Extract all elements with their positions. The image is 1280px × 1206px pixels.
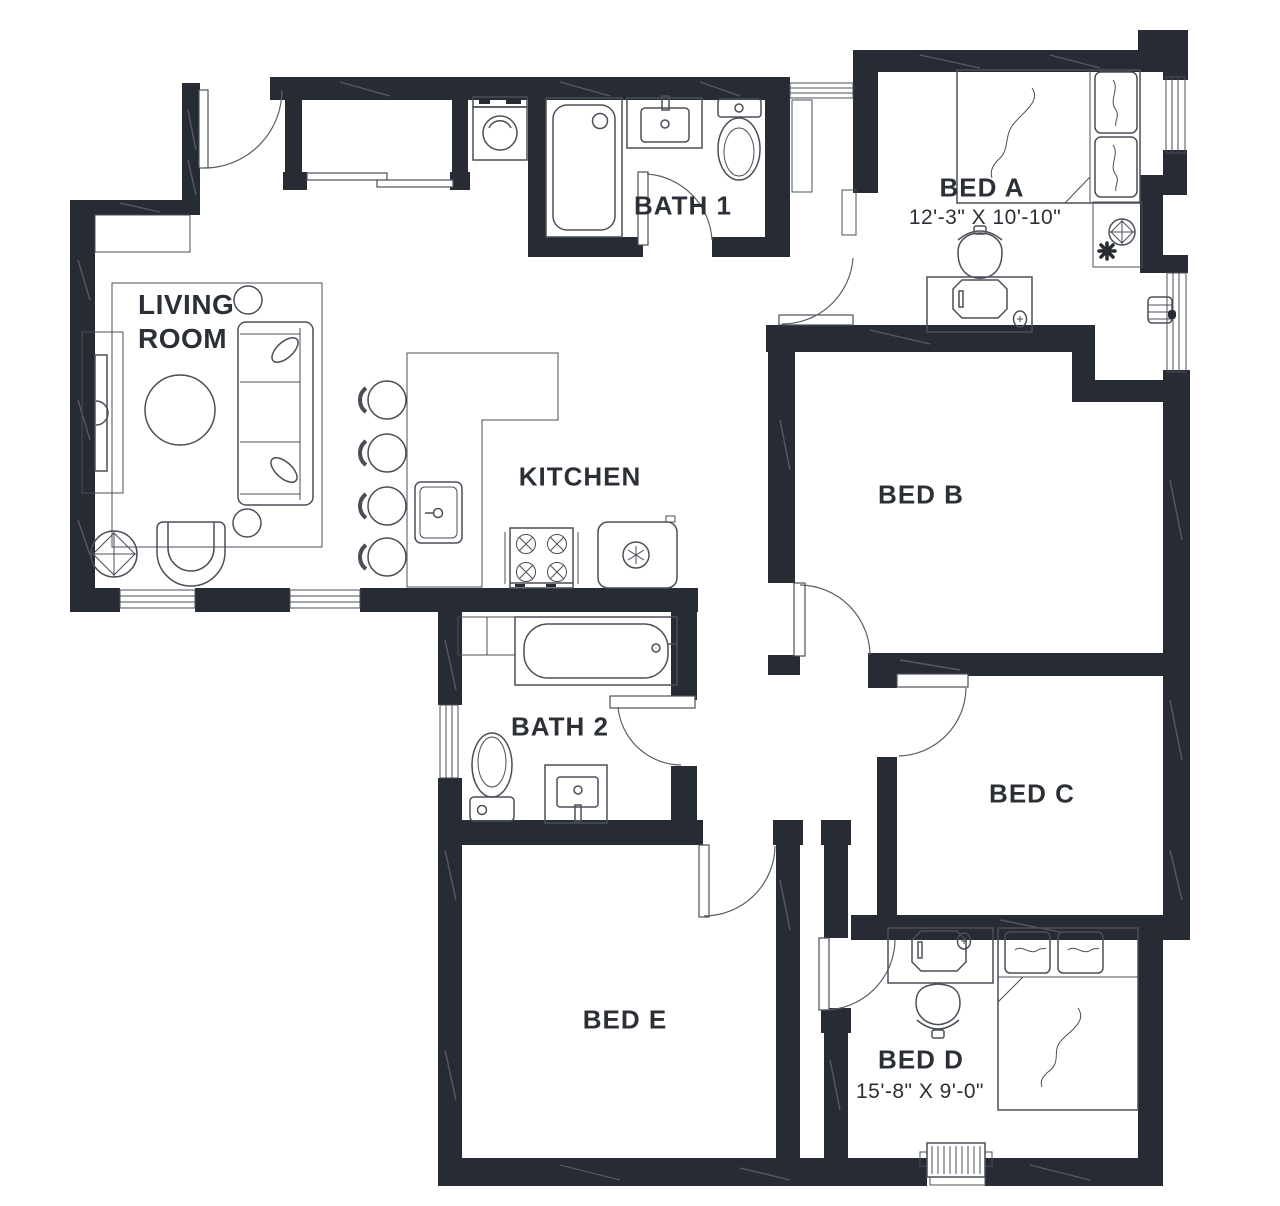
bed-d-bed-icon: [998, 928, 1138, 1110]
bed-d-door: [819, 938, 895, 1010]
closet-sliding-doors: [307, 173, 453, 187]
bed-a-dimensions: 12'-3" X 10'-10": [909, 206, 1061, 230]
living-room-window-left: [120, 590, 195, 608]
floor-plan: LIVING ROOM KITCHEN BATH 1 BATH 2 BED A …: [0, 0, 1280, 1206]
bed-a-window: [1166, 77, 1185, 153]
living-room-label-line1: LIVING: [138, 288, 234, 322]
side-table-bottom-icon: [233, 509, 261, 537]
kitchen-label: KITCHEN: [519, 462, 642, 491]
living-room-window-right: [290, 590, 360, 608]
bed-e-label: BED E: [583, 1005, 667, 1034]
bath2-toilet-icon: [470, 733, 514, 821]
doors: [199, 90, 968, 1010]
bed-a-desk-icon: [927, 277, 1032, 332]
bed-c-door: [897, 674, 968, 756]
side-table-top-icon: [234, 286, 262, 314]
tv-icon: [95, 355, 108, 471]
entry-door: [199, 90, 282, 168]
bath1-label: BATH 1: [634, 191, 732, 220]
radiator-bottom-icon: [920, 1143, 992, 1185]
washing-machine-icon: [473, 97, 527, 160]
bath1-toilet-icon: [718, 99, 761, 180]
bed-a-door: [779, 258, 853, 325]
shower-icon: [546, 98, 622, 237]
stove-icon: [505, 528, 578, 588]
kitchen-sink-icon: [415, 482, 462, 543]
bed-c-label: BED C: [989, 779, 1075, 808]
bed-b-door: [794, 583, 870, 656]
bath2-window: [440, 705, 458, 778]
refrigerator-icon: [598, 516, 677, 588]
bath2-door: [610, 696, 695, 765]
bed-d-dimensions: 15'-8" X 9'-0": [856, 1080, 984, 1104]
bed-a-closet: [792, 100, 856, 235]
plant-icon: [91, 531, 137, 577]
bed-a-nightstand-icon: [1093, 202, 1142, 267]
living-room-label: LIVING ROOM: [138, 288, 234, 356]
plant-starburst-icon: [1099, 243, 1115, 259]
bed-d-label: BED D: [878, 1045, 964, 1074]
coffee-table-icon: [145, 375, 215, 445]
top-wall-window: [790, 83, 853, 98]
bed-d-chair-icon: [916, 984, 960, 1038]
bath2-sink-icon: [545, 765, 607, 823]
bed-a-label: BED A: [940, 173, 1025, 202]
bed-b-label: BED B: [878, 480, 964, 509]
bathtub-icon: [458, 617, 677, 685]
bed-e-door: [699, 845, 775, 917]
entry-shelf: [95, 215, 190, 252]
radiator-right-icon: [1148, 297, 1176, 323]
bath1-sink-icon: [627, 96, 702, 148]
armchair-icon: [157, 522, 225, 586]
bar-stools: [360, 381, 406, 576]
bed-a-chair-icon: [958, 226, 1002, 278]
living-room-label-line2: ROOM: [138, 322, 234, 356]
bath2-label: BATH 2: [511, 712, 609, 741]
sofa-icon: [238, 322, 313, 505]
